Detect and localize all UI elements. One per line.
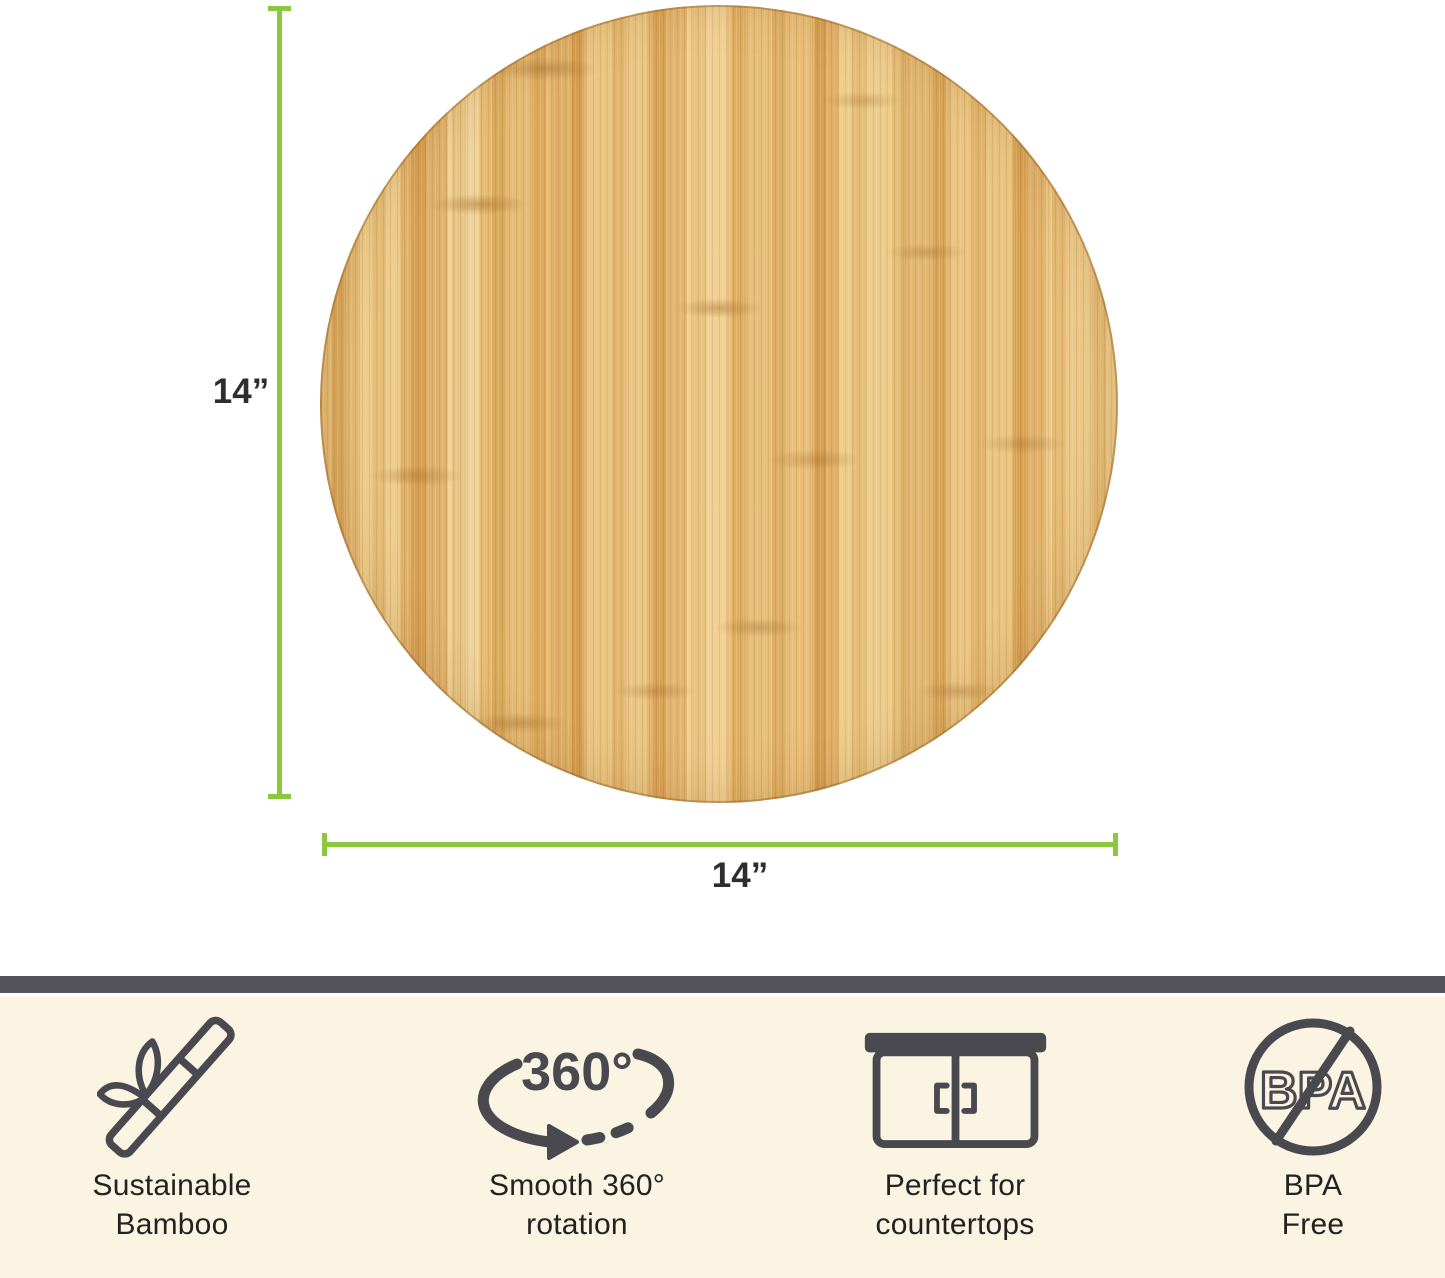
feature-label: Perfect for countertops <box>876 1166 1035 1244</box>
banner-divider-bar <box>0 976 1445 993</box>
feature-smooth-rotation: 360° Smooth 360° rotation <box>407 1008 747 1244</box>
feature-bpa-free: BPA BPA Free <box>1143 1008 1445 1244</box>
rotation-icon-box: 360° <box>475 1008 680 1166</box>
feature-label-line2: rotation <box>489 1205 665 1244</box>
width-dimension-line <box>322 842 1118 847</box>
feature-label: Sustainable Bamboo <box>93 1166 252 1244</box>
feature-label: BPA Free <box>1282 1166 1345 1244</box>
countertop-icon-box <box>858 1008 1053 1166</box>
feature-label-line2: Bamboo <box>93 1205 252 1244</box>
feature-label-line1: Sustainable <box>93 1166 252 1205</box>
bpa-free-icon: BPA <box>1238 1012 1388 1162</box>
product-infographic: 14” 14” Sustainable Bamboo 360° <box>0 0 1445 1278</box>
bpa-icon-box: BPA <box>1238 1008 1388 1166</box>
feature-label-line1: Perfect for <box>876 1166 1035 1205</box>
feature-sustainable-bamboo: Sustainable Bamboo <box>2 1008 342 1244</box>
feature-label-line1: Smooth 360° <box>489 1166 665 1205</box>
bamboo-icon <box>97 1012 247 1162</box>
height-dimension-label: 14” <box>191 374 291 410</box>
rotation-360-icon: 360° <box>475 1012 680 1162</box>
bamboo-icon-box <box>97 1008 247 1166</box>
feature-countertops: Perfect for countertops <box>785 1008 1125 1244</box>
feature-label-line2: Free <box>1282 1205 1345 1244</box>
feature-label-line1: BPA <box>1282 1166 1345 1205</box>
bamboo-lazy-susan-board <box>320 5 1118 803</box>
width-dimension-label: 14” <box>690 858 790 894</box>
countertop-cabinet-icon <box>858 1021 1053 1153</box>
feature-label-line2: countertops <box>876 1205 1035 1244</box>
svg-text:360°: 360° <box>521 1042 633 1102</box>
feature-label: Smooth 360° rotation <box>489 1166 665 1244</box>
